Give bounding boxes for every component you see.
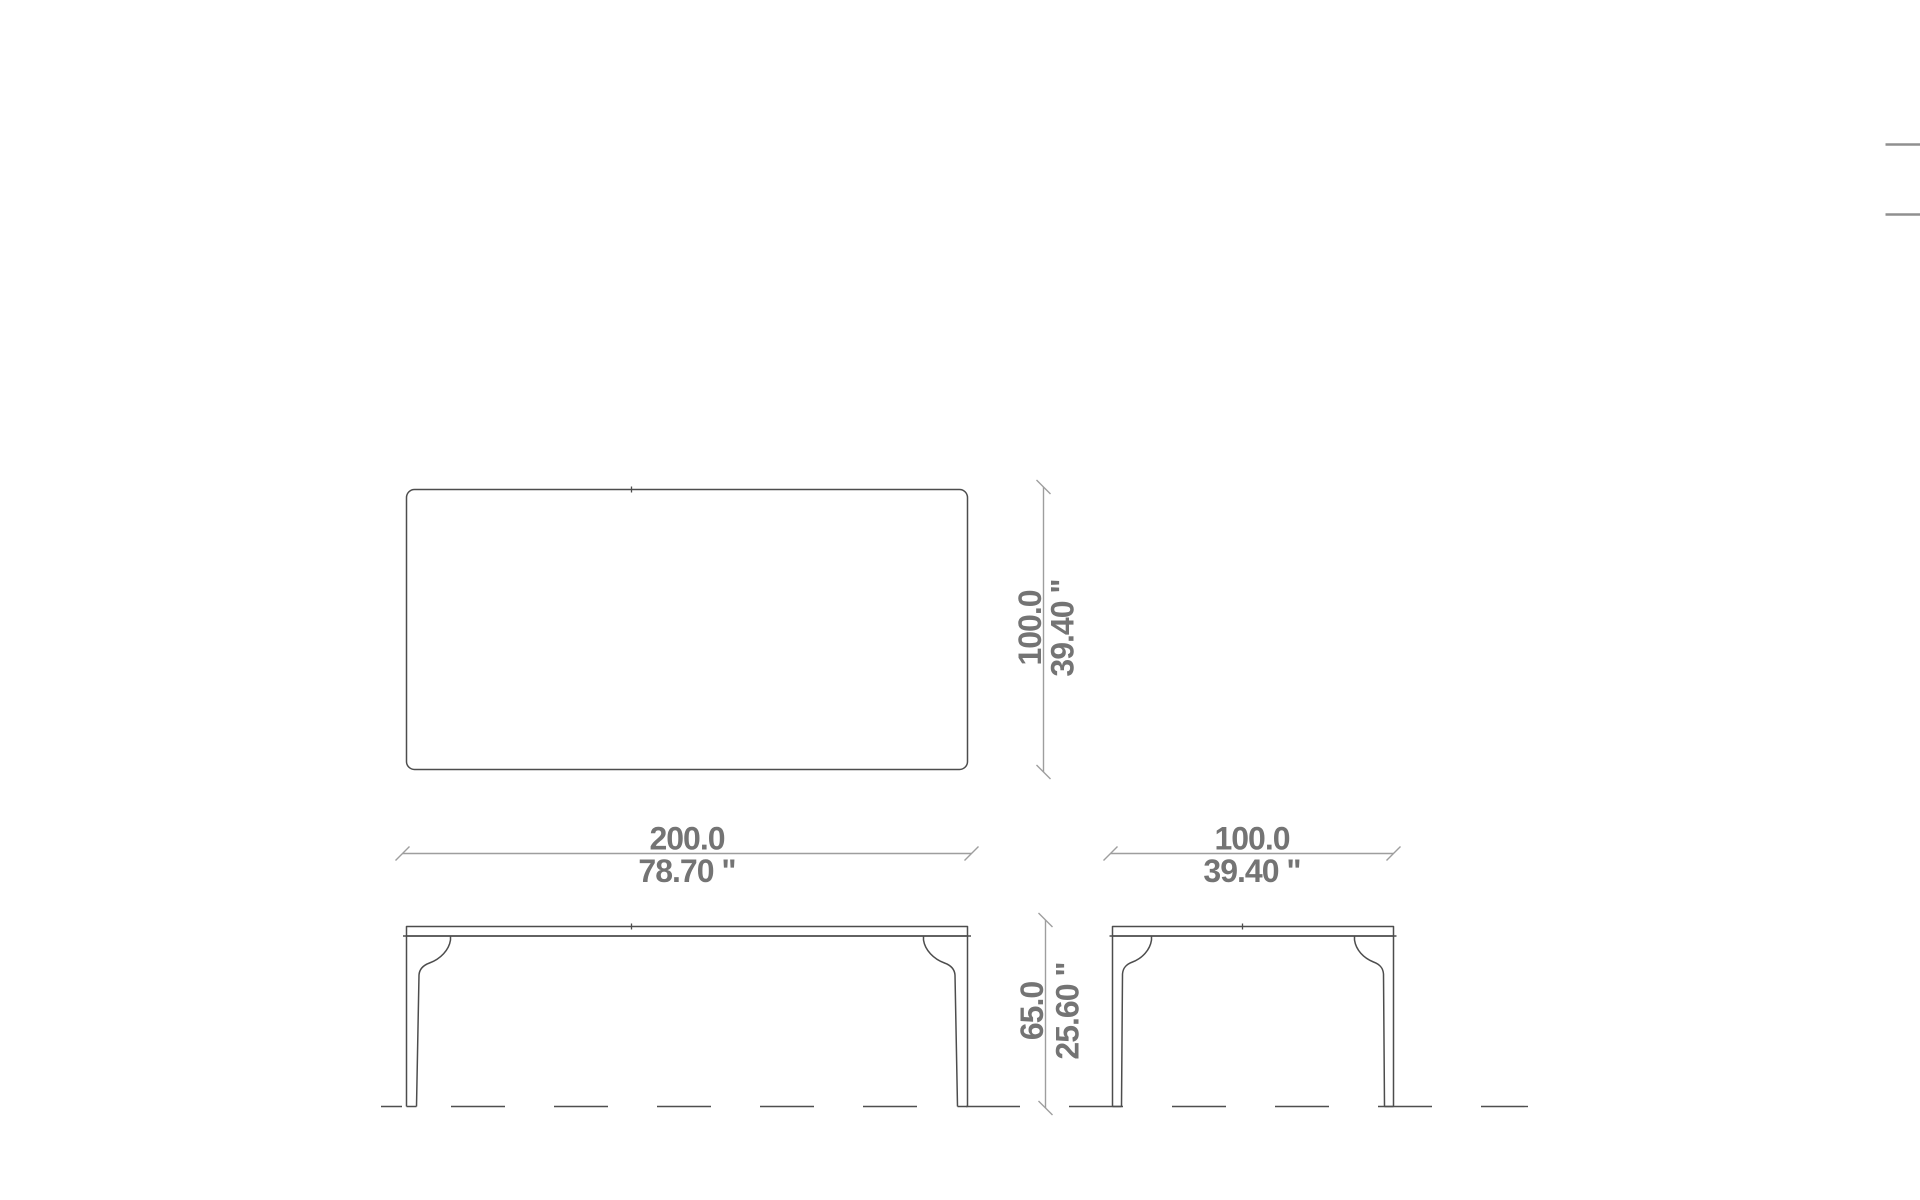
side-elevation	[1110, 924, 1397, 1107]
side-width-imperial-label: 39.40 "	[1203, 853, 1300, 889]
side-right-leg-inner-edge	[1355, 936, 1385, 1107]
side-width-metric-label: 100.0	[1214, 821, 1289, 857]
side-left-leg-inner-edge	[1122, 936, 1152, 1107]
plan-width-imperial-label: 78.70 "	[638, 853, 735, 889]
right-edge-clipped-lines	[1886, 145, 1920, 215]
dimension-lines	[396, 480, 1401, 1115]
height-imperial-label: 25.60 "	[1050, 962, 1086, 1059]
height-metric-label: 65.0	[1014, 982, 1050, 1040]
front-tabletop-slab	[407, 927, 968, 937]
side-tabletop-slab	[1113, 927, 1394, 937]
top-view	[407, 487, 968, 770]
dimension-labels: 100.0 39.40 " 200.0 78.70 " 100.0 39.40 …	[638, 579, 1300, 1059]
plan-depth-imperial-label: 39.40 "	[1045, 579, 1081, 676]
plan-width-metric-label: 200.0	[649, 821, 724, 857]
front-right-leg-inner-edge	[924, 936, 958, 1107]
tabletop-plan-outline	[407, 490, 968, 770]
drawing-geometry	[381, 487, 1528, 1107]
plan-depth-metric-label: 100.0	[1012, 590, 1048, 665]
drawing-canvas: 100.0 39.40 " 200.0 78.70 " 100.0 39.40 …	[0, 0, 1920, 1200]
front-left-leg-inner-edge	[417, 936, 451, 1107]
front-elevation	[403, 924, 971, 1107]
table-dimension-drawing: 100.0 39.40 " 200.0 78.70 " 100.0 39.40 …	[0, 0, 1920, 1200]
